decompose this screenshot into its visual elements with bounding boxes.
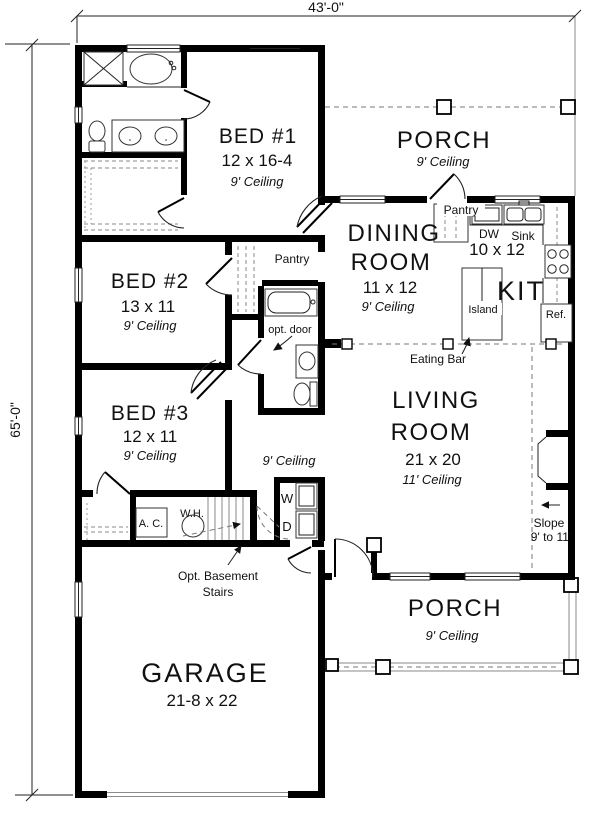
hall-bath-door xyxy=(238,340,261,374)
vanity-sink xyxy=(119,127,141,145)
width-dimension-label: 43'-0" xyxy=(308,0,344,15)
bed2-ceiling: 9' Ceiling xyxy=(123,318,177,333)
dining-size: 11 x 12 xyxy=(363,278,418,297)
interior-column xyxy=(367,538,381,552)
toilet xyxy=(294,383,310,405)
island-label: Island xyxy=(468,304,497,316)
dining-ceiling: 9' Ceiling xyxy=(361,299,415,314)
bed3-size: 12 x 11 xyxy=(123,427,178,446)
opt-basement-label-1: Opt. Basement xyxy=(178,569,259,583)
window xyxy=(127,45,180,52)
window xyxy=(465,573,520,580)
porch-column xyxy=(437,100,451,114)
eating-bar-label: Eating Bar xyxy=(410,352,466,366)
front-entry-door xyxy=(430,174,465,199)
toilet-tank xyxy=(310,382,317,406)
dimension-lines: 43'-0" 65'-0" xyxy=(5,0,581,801)
porch-column xyxy=(326,659,338,671)
wh-label: W.H. xyxy=(180,508,204,520)
bed1-size: 12 x 16-4 xyxy=(222,151,293,170)
garden-tub xyxy=(130,54,172,84)
garage-entry-door xyxy=(288,547,311,573)
living-ceiling: 11' Ceiling xyxy=(402,472,462,487)
garage-size: 21-8 x 22 xyxy=(167,691,238,710)
slope-label-2: 9' to 11' xyxy=(531,530,571,544)
living-name-1: LIVING xyxy=(392,387,480,414)
porch-bottom-name: PORCH xyxy=(408,595,502,622)
dishwasher-label: DW xyxy=(479,227,500,241)
slope-label-1: Slope xyxy=(534,516,565,530)
eating-bar-post xyxy=(546,339,556,349)
bed1-ceiling: 9' Ceiling xyxy=(230,174,284,189)
opt-basement-label-2: Stairs xyxy=(203,585,234,599)
eating-bar-post xyxy=(443,339,453,349)
porch-top-ceiling: 9' Ceiling xyxy=(416,154,470,169)
window xyxy=(495,196,540,203)
window xyxy=(250,45,300,52)
ac-label: A. C. xyxy=(139,518,163,530)
hall-bath xyxy=(265,289,318,406)
floor-plan-svg: 43'-0" 65'-0" xyxy=(0,0,600,813)
dining-name-1: DINING xyxy=(348,220,441,247)
stove xyxy=(545,245,571,278)
kitchen-pantry-label: Pantry xyxy=(444,203,479,217)
bed2-door xyxy=(206,258,232,295)
bed1-name: BED #1 xyxy=(219,125,297,148)
toilet xyxy=(89,121,105,141)
walkin-pantry xyxy=(238,246,254,312)
floor-plan-page: 43'-0" 65'-0" xyxy=(0,0,600,813)
bed3-ceiling: 9' Ceiling xyxy=(123,448,177,463)
window xyxy=(340,196,385,203)
porch-column xyxy=(564,578,578,592)
bed3-closet-door xyxy=(97,472,130,494)
hall-ceiling: 9' Ceiling xyxy=(262,453,316,468)
tub-faucet xyxy=(172,66,176,70)
kitchen-name: KIT xyxy=(497,276,545,306)
window xyxy=(75,582,82,617)
bed2-name: BED #2 xyxy=(111,270,189,293)
porch-column xyxy=(561,100,575,114)
eating-bar-post xyxy=(342,339,352,349)
porch-top-name: PORCH xyxy=(397,127,491,154)
opt-door-arrow xyxy=(274,336,292,350)
dryer-label: D xyxy=(282,519,291,534)
vanity-sink xyxy=(155,127,177,145)
porch-bottom-ceiling: 9' Ceiling xyxy=(425,628,479,643)
window xyxy=(75,268,82,302)
rear-porch xyxy=(326,578,578,674)
opt-door-label: opt. door xyxy=(268,324,312,336)
walkin-pantry-label: Pantry xyxy=(275,252,310,266)
bed2-size: 13 x 11 xyxy=(121,297,176,316)
bath-sink xyxy=(299,352,315,370)
window xyxy=(390,573,430,580)
garage-name: GARAGE xyxy=(141,658,269,688)
stairs-leader-arrow xyxy=(228,546,241,565)
master-bath-door xyxy=(184,90,210,119)
living-name-2: ROOM xyxy=(391,419,472,446)
dining-name-2: ROOM xyxy=(351,249,432,276)
porch-column xyxy=(564,660,578,674)
washer-label: W xyxy=(281,491,294,506)
window xyxy=(75,107,82,123)
master-bath xyxy=(84,52,184,152)
toilet-tank xyxy=(89,141,105,152)
bed3-name: BED #3 xyxy=(111,402,189,425)
living-size: 21 x 20 xyxy=(405,450,461,469)
window xyxy=(75,417,82,435)
front-porch xyxy=(325,100,575,114)
kitchen-size: 10 x 12 xyxy=(469,240,525,259)
fireplace xyxy=(538,430,568,490)
refrigerator-label: Ref. xyxy=(546,309,566,321)
porch-column xyxy=(376,660,390,674)
height-dimension-label: 65'-0" xyxy=(7,402,23,438)
